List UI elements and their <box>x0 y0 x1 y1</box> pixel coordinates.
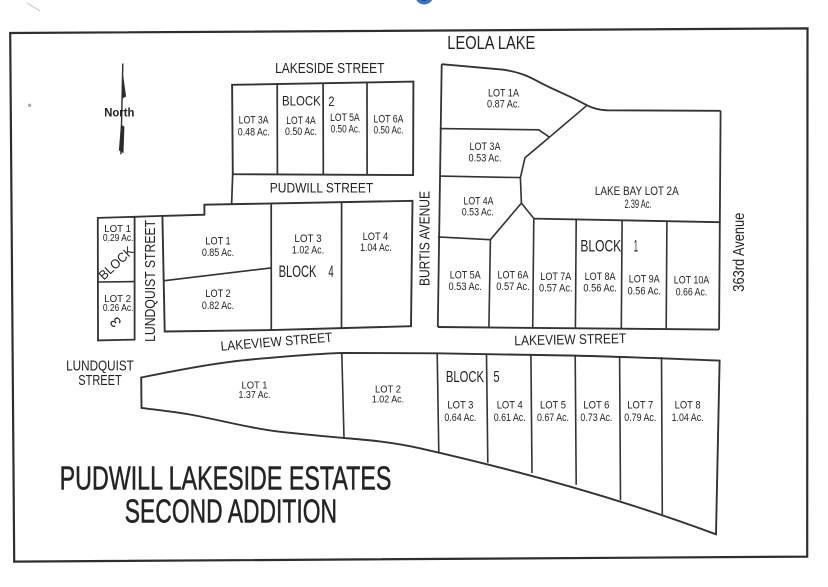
svg-text:BLOCK: BLOCK <box>446 369 484 386</box>
svg-text:0.53 Ac.: 0.53 Ac. <box>462 206 494 218</box>
svg-text:BLOCK: BLOCK <box>580 237 621 256</box>
svg-text:0.61 Ac.: 0.61 Ac. <box>494 412 526 424</box>
svg-text:LOT 3A: LOT 3A <box>470 141 502 153</box>
svg-text:STREET: STREET <box>78 373 122 389</box>
svg-text:LOT 7A: LOT 7A <box>540 271 572 283</box>
svg-text:LAKEVIEW STREET: LAKEVIEW STREET <box>514 330 627 348</box>
svg-text:0.64 Ac.: 0.64 Ac. <box>444 412 476 424</box>
svg-text:0.67 Ac.: 0.67 Ac. <box>537 412 569 424</box>
svg-text:0.82 Ac.: 0.82 Ac. <box>202 300 234 312</box>
svg-text:1.02 Ac.: 1.02 Ac. <box>372 393 404 405</box>
svg-text:1.04 Ac.: 1.04 Ac. <box>360 242 392 254</box>
svg-text:BURTIS AVENUE: BURTIS AVENUE <box>417 191 434 286</box>
svg-text:LOT 8A: LOT 8A <box>585 271 617 283</box>
svg-text:LOT 5A: LOT 5A <box>330 112 360 124</box>
svg-text:LOT 1: LOT 1 <box>205 235 230 247</box>
svg-text:LOT 3A: LOT 3A <box>239 115 270 127</box>
svg-text:North: North <box>104 105 134 119</box>
svg-text:LAKE BAY LOT 2A: LAKE BAY LOT 2A <box>595 186 679 198</box>
svg-text:0.57 Ac.: 0.57 Ac. <box>539 282 573 294</box>
svg-text:LOT 6A: LOT 6A <box>498 270 530 282</box>
svg-text:LOT 4: LOT 4 <box>497 399 523 411</box>
svg-text:LAKESIDE STREET: LAKESIDE STREET <box>275 61 385 77</box>
svg-text:LOT 5: LOT 5 <box>540 399 566 411</box>
svg-text:4: 4 <box>328 262 333 281</box>
svg-text:0.50 Ac.: 0.50 Ac. <box>285 126 317 138</box>
svg-text:1.04 Ac.: 1.04 Ac. <box>672 412 704 424</box>
svg-text:LUNDQUIST: LUNDQUIST <box>66 358 134 374</box>
svg-text:LOT 8: LOT 8 <box>675 399 701 411</box>
svg-text:0.29 Ac.: 0.29 Ac. <box>103 232 134 244</box>
svg-text:PUDWILL STREET: PUDWILL STREET <box>270 179 374 195</box>
svg-text:0.26 Ac.: 0.26 Ac. <box>103 302 134 314</box>
svg-text:1.02 Ac.: 1.02 Ac. <box>292 244 324 256</box>
svg-text:2.39 Ac.: 2.39 Ac. <box>624 199 651 211</box>
svg-text:0.48 Ac.: 0.48 Ac. <box>238 127 270 139</box>
svg-text:PUDWILL LAKESIDE ESTATES: PUDWILL LAKESIDE ESTATES <box>60 460 392 497</box>
svg-text:2: 2 <box>328 93 334 109</box>
svg-text:LUNDQUIST STREET: LUNDQUIST STREET <box>143 220 159 342</box>
svg-text:0.56 Ac.: 0.56 Ac. <box>583 282 617 294</box>
svg-text:0.53 Ac.: 0.53 Ac. <box>469 153 502 165</box>
svg-text:0.73 Ac.: 0.73 Ac. <box>580 412 612 424</box>
svg-text:5: 5 <box>493 369 499 386</box>
svg-text:0.50 Ac.: 0.50 Ac. <box>331 123 361 135</box>
svg-text:0.50 Ac.: 0.50 Ac. <box>374 125 404 137</box>
svg-text:363rd Avenue: 363rd Avenue <box>731 213 748 292</box>
svg-text:LOT 10A: LOT 10A <box>674 274 710 286</box>
svg-text:LOT 6: LOT 6 <box>583 399 609 411</box>
svg-text:0.56 Ac.: 0.56 Ac. <box>627 286 661 298</box>
svg-text:LOT 3: LOT 3 <box>294 233 321 245</box>
svg-text:LOT 3: LOT 3 <box>447 399 473 411</box>
svg-text:LOT 1A: LOT 1A <box>488 87 520 99</box>
svg-text:LOT 5A: LOT 5A <box>450 270 482 282</box>
svg-text:LOT 2: LOT 2 <box>205 288 230 300</box>
svg-text:BLOCK: BLOCK <box>282 93 321 109</box>
svg-text:0.66 Ac.: 0.66 Ac. <box>676 286 708 298</box>
svg-text:LOT 9A: LOT 9A <box>629 273 661 285</box>
svg-text:1.37 Ac.: 1.37 Ac. <box>239 389 271 401</box>
svg-text:0.57 Ac.: 0.57 Ac. <box>496 281 530 293</box>
svg-text:0.53 Ac.: 0.53 Ac. <box>448 281 482 293</box>
svg-text:SECOND ADDITION: SECOND ADDITION <box>125 492 337 529</box>
svg-text:0.79 Ac.: 0.79 Ac. <box>624 412 656 424</box>
svg-text:0.85 Ac.: 0.85 Ac. <box>202 247 234 259</box>
svg-text:LEOLA LAKE: LEOLA LAKE <box>447 32 535 53</box>
svg-text:0.87 Ac.: 0.87 Ac. <box>487 99 520 111</box>
svg-text:1: 1 <box>634 237 638 256</box>
svg-text:LOT 4: LOT 4 <box>363 231 389 243</box>
svg-text:LOT 7: LOT 7 <box>627 399 653 411</box>
svg-text:BLOCK: BLOCK <box>279 262 317 281</box>
